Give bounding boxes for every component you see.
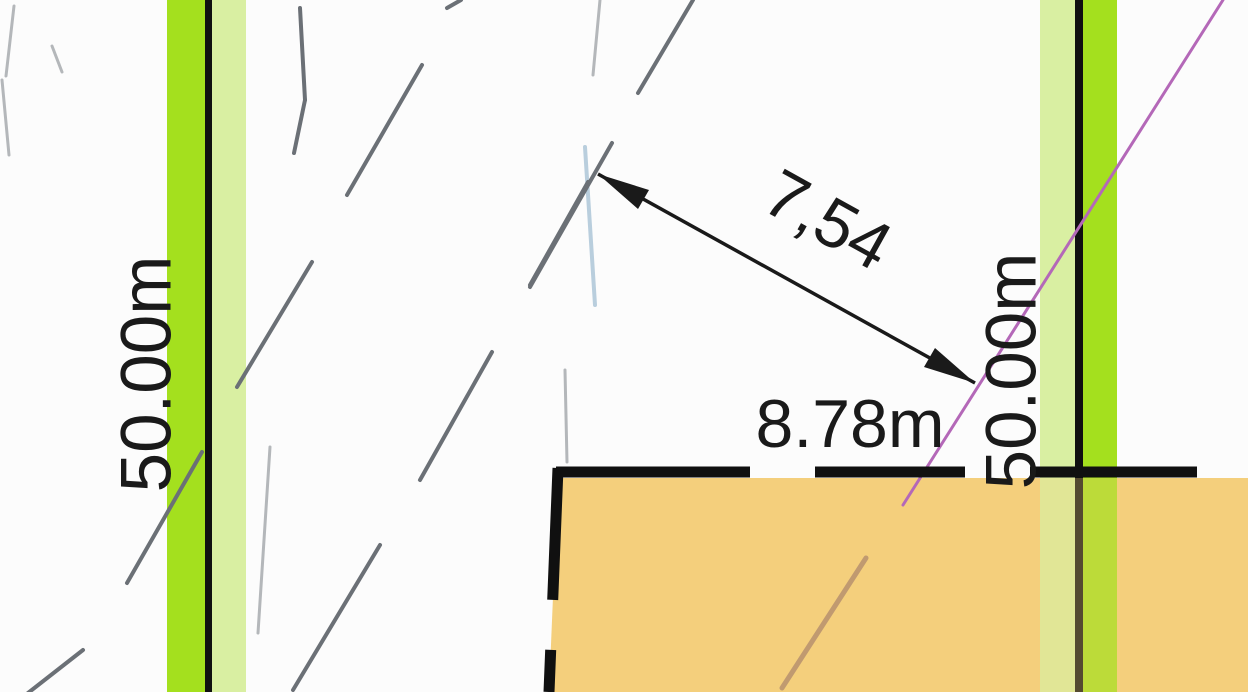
arrowhead-left <box>598 174 649 209</box>
sketch-lines-light <box>2 0 600 633</box>
right-length-label: 50.00m <box>977 253 1048 490</box>
sketch-line-blue <box>585 147 595 305</box>
setback-dimension-label: 8.78m <box>756 390 945 458</box>
site-plan-canvas: 50.00m 50.00m 7,54 8.78m <box>0 0 1248 692</box>
band-over-building-tint <box>1040 478 1117 692</box>
arrowhead-right <box>924 348 975 383</box>
left-boundary-line <box>205 0 212 692</box>
building-area-fill <box>549 478 1248 692</box>
site-plan-graphics <box>0 0 1248 692</box>
left-length-label: 50.00m <box>112 256 183 493</box>
